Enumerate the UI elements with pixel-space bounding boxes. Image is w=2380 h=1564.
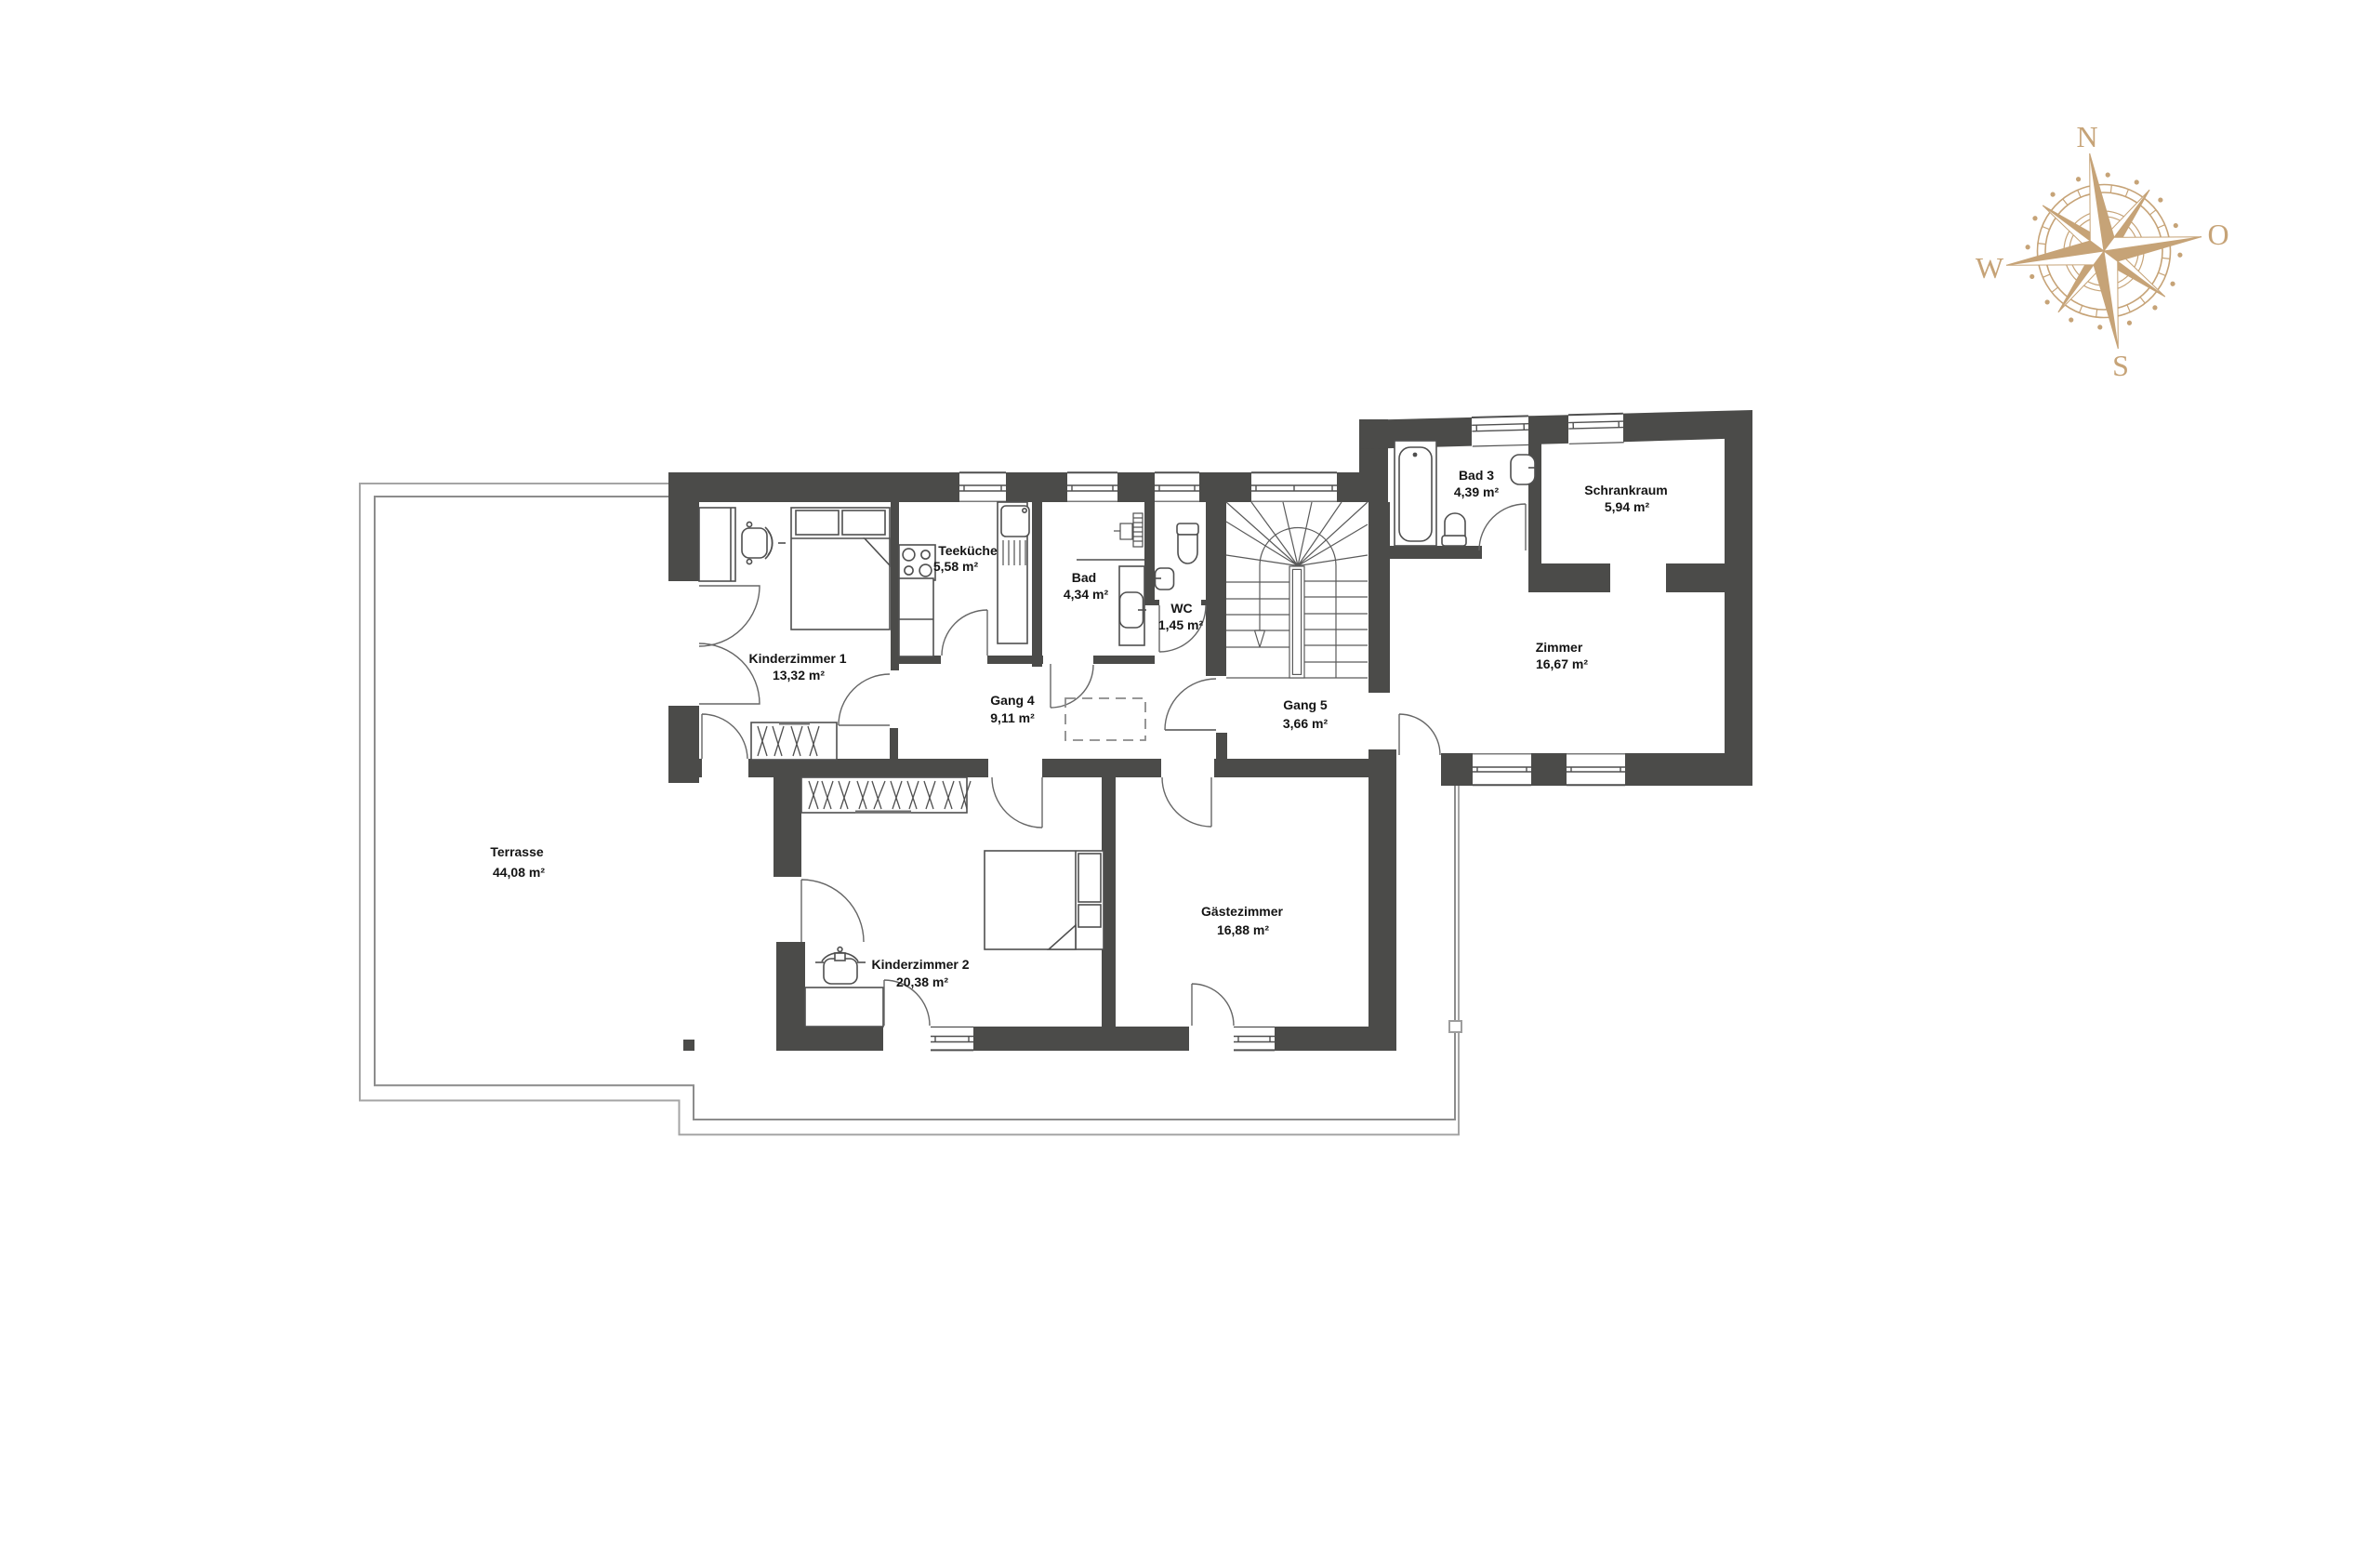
svg-text:3,66 m²: 3,66 m² [1283,716,1329,731]
svg-text:Schrankraum: Schrankraum [1584,483,1667,497]
svg-text:WC: WC [1170,601,1192,616]
svg-text:5,58 m²: 5,58 m² [933,559,979,574]
svg-text:Bad 3: Bad 3 [1459,468,1494,483]
svg-text:9,11 m²: 9,11 m² [990,710,1035,725]
svg-text:Gang 4: Gang 4 [990,693,1035,708]
svg-text:13,32 m²: 13,32 m² [773,668,825,683]
svg-text:5,94 m²: 5,94 m² [1605,499,1650,514]
svg-text:44,08 m²: 44,08 m² [493,865,545,880]
svg-text:16,88 m²: 16,88 m² [1217,922,1269,937]
svg-text:O: O [2207,218,2228,251]
svg-text:N: N [2076,120,2097,153]
svg-text:Kinderzimmer 2: Kinderzimmer 2 [871,957,969,972]
svg-text:Gang 5: Gang 5 [1283,697,1328,712]
svg-text:S: S [2112,349,2129,382]
svg-text:20,38 m²: 20,38 m² [896,974,948,989]
svg-text:Teeküche: Teeküche [938,543,998,558]
svg-text:4,39 m²: 4,39 m² [1454,484,1500,499]
svg-text:W: W [1976,251,2004,285]
svg-text:Zimmer: Zimmer [1536,640,1583,655]
svg-text:Gästezimmer: Gästezimmer [1201,904,1283,919]
svg-text:Bad: Bad [1072,570,1096,585]
svg-text:4,34 m²: 4,34 m² [1064,587,1109,602]
svg-text:Terrasse: Terrasse [490,844,544,859]
svg-text:Kinderzimmer 1: Kinderzimmer 1 [748,651,846,666]
svg-text:16,67 m²: 16,67 m² [1536,656,1588,671]
svg-text:1,45 m²: 1,45 m² [1158,617,1204,632]
